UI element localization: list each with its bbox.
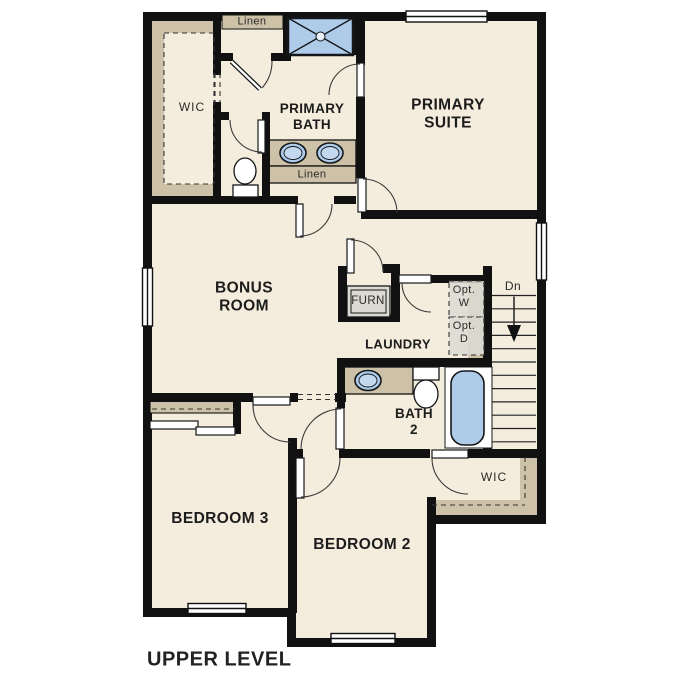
floor-plan: Linen WIC PRIMARY BATH PRIMARY SUITE Lin… — [0, 0, 687, 687]
toilet-tank — [413, 367, 439, 380]
sink-basin — [359, 374, 377, 387]
label-primary-bath: PRIMARY BATH — [280, 101, 345, 133]
label-bedroom3: BEDROOM 3 — [171, 510, 268, 528]
label-bedroom2: BEDROOM 2 — [313, 536, 410, 554]
toilet-bowl — [414, 380, 438, 408]
door-leaf-laundry — [399, 275, 431, 283]
door-leaf-furnace — [347, 239, 354, 273]
label-bedroom2-wic: WIC — [481, 470, 507, 484]
door-leaf-primary-suite — [358, 178, 366, 212]
wall — [337, 358, 492, 367]
wall — [335, 393, 346, 402]
bathtub — [451, 371, 484, 445]
wall — [338, 266, 347, 322]
wall — [361, 210, 542, 219]
label-laundry: LAUNDRY — [365, 336, 431, 351]
wall — [339, 449, 430, 458]
label-furnace: FURN — [351, 295, 385, 309]
label-primary-suite: PRIMARY SUITE — [411, 97, 485, 134]
label-bonus-room: BONUS ROOM — [215, 280, 273, 317]
door-leaf-bath2 — [336, 408, 344, 449]
label-bath2: BATH 2 — [395, 406, 433, 438]
wall — [356, 97, 365, 178]
wall — [391, 264, 400, 322]
wall — [213, 112, 229, 120]
door-leaf-bedroom2-wic — [432, 450, 468, 458]
shower-drain — [316, 32, 325, 41]
sink-basin — [284, 147, 302, 160]
door-leaf-toilet-room — [258, 120, 265, 153]
bedroom2-wic-shelf-bottom — [431, 500, 537, 515]
wall — [221, 53, 233, 61]
label-primary-wic: WIC — [179, 100, 205, 114]
wall — [147, 196, 298, 204]
toilet-tank — [233, 185, 258, 197]
wall — [334, 196, 356, 204]
sink-basin — [321, 147, 339, 160]
door-leaf-bedroom2 — [296, 458, 304, 498]
label-opt-washer: Opt. W — [453, 284, 475, 310]
door-leaf-hall — [296, 204, 303, 237]
label-linen-hall: Linen — [298, 169, 327, 182]
door-leaf-primary-bath — [357, 63, 364, 97]
closet-bypass-door — [196, 427, 235, 435]
toilet-bowl — [234, 158, 256, 184]
wall — [290, 393, 298, 402]
wall — [468, 449, 541, 458]
wall — [147, 393, 253, 402]
closet-bypass-door — [150, 421, 198, 429]
label-stairs-down: Dn — [505, 279, 521, 293]
wall — [427, 497, 436, 519]
page-title: UPPER LEVEL — [147, 649, 291, 672]
label-linen-top: Linen — [238, 16, 267, 29]
door-leaf-bedroom3 — [253, 397, 290, 405]
label-opt-dryer: Opt. D — [453, 320, 475, 346]
